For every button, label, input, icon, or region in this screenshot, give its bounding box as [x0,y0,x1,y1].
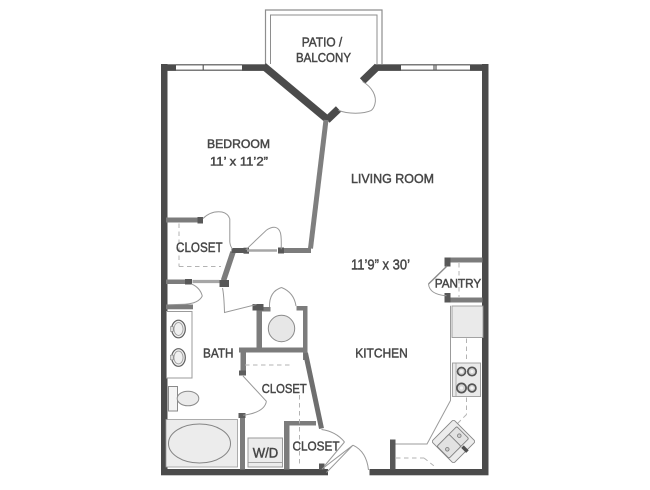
svg-text:BALCONY: BALCONY [296,51,352,65]
svg-text:11’ x 11’2”: 11’ x 11’2” [210,156,268,168]
svg-text:W/D: W/D [253,445,279,460]
svg-text:KITCHEN: KITCHEN [355,345,408,360]
svg-text:BEDROOM: BEDROOM [207,139,270,151]
svg-text:CLOSET: CLOSET [176,240,223,255]
svg-text:11’9” x 30’: 11’9” x 30’ [351,257,410,274]
svg-text:CLOSET: CLOSET [262,381,307,396]
svg-text:CLOSET: CLOSET [293,438,340,453]
svg-text:LIVING ROOM: LIVING ROOM [351,172,434,186]
svg-text:PANTRY: PANTRY [435,277,482,291]
svg-text:BATH: BATH [203,345,234,360]
svg-text:PATIO /: PATIO / [302,36,343,50]
